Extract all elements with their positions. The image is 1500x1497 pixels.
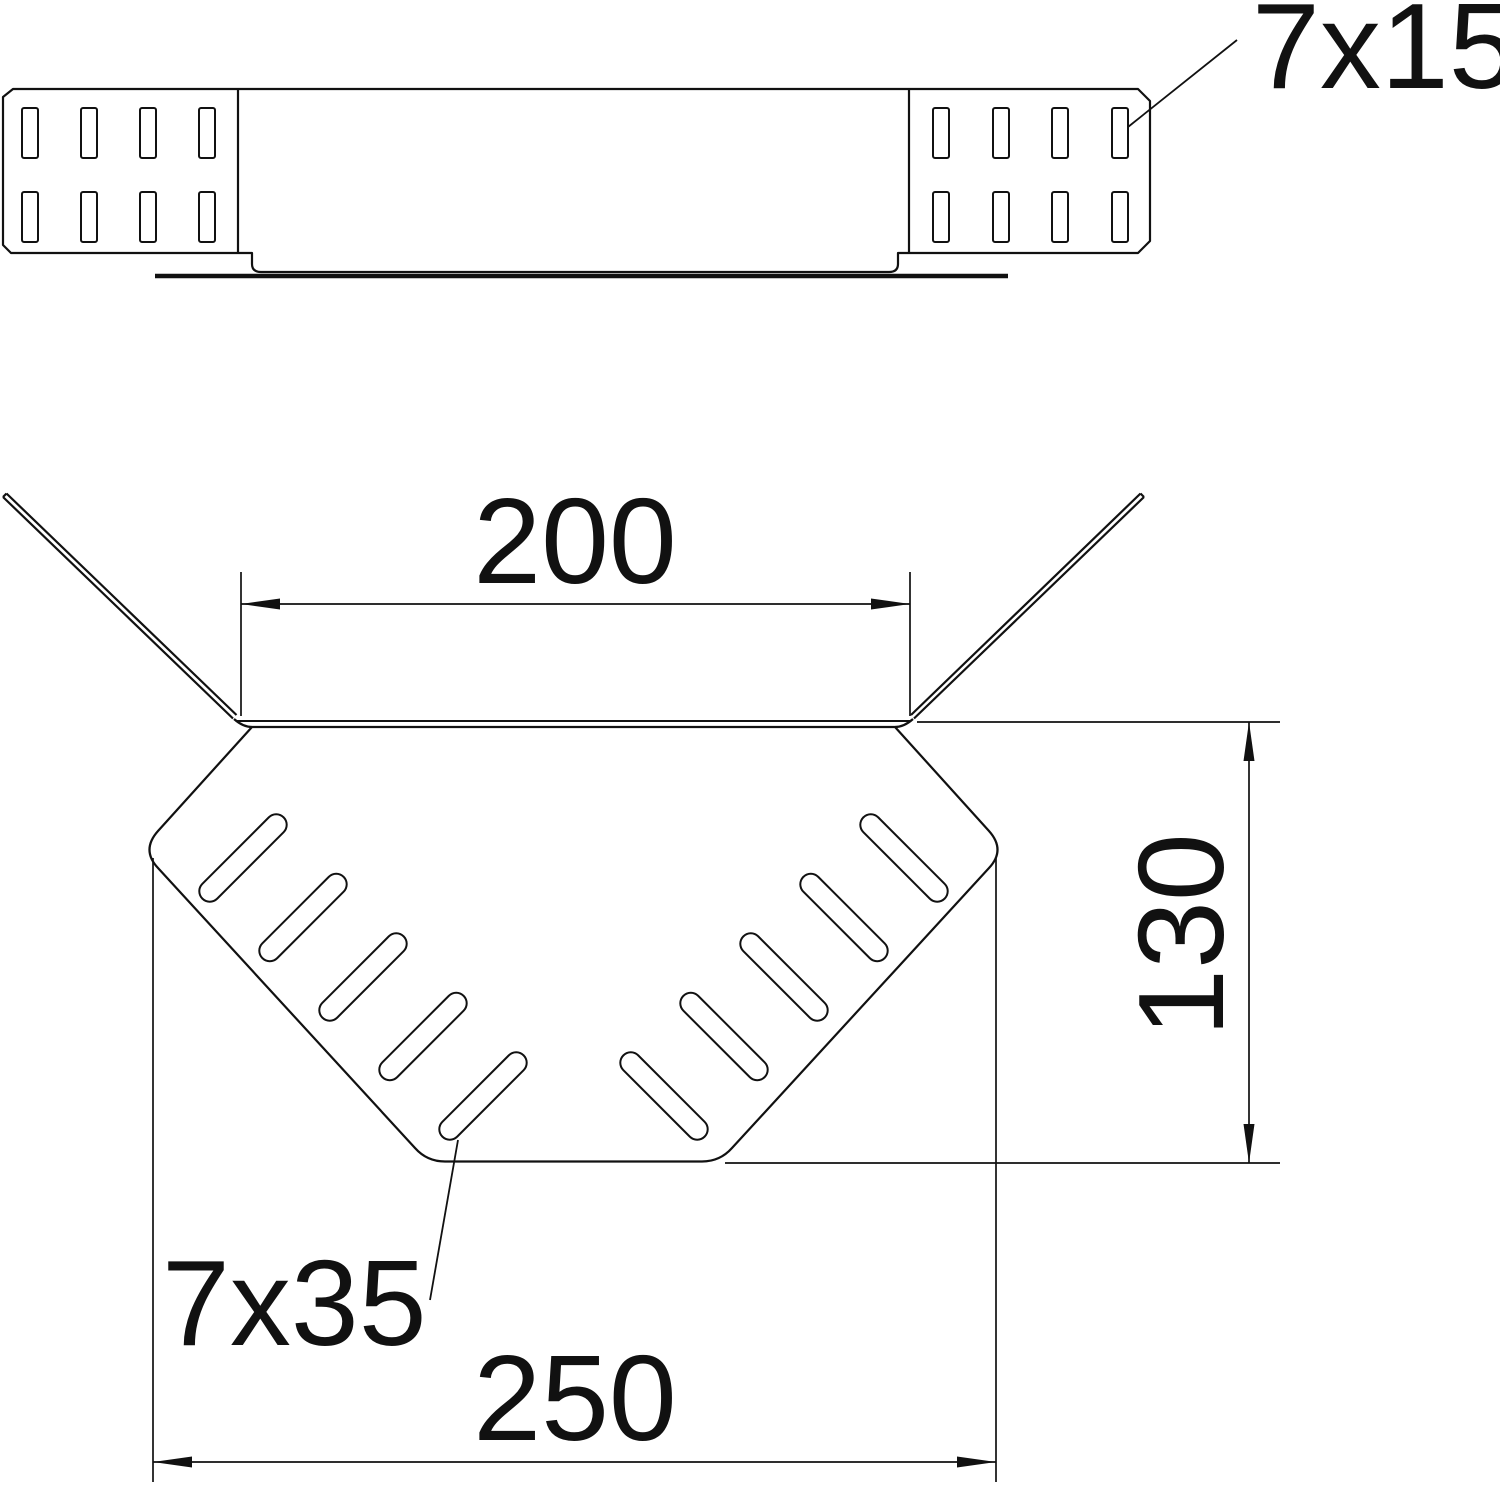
dimension-130: 130	[725, 722, 1280, 1163]
corner-slot	[691, 1003, 757, 1069]
connector-slot	[140, 108, 156, 158]
slot-size-label-7x35: 7x35	[162, 1235, 427, 1371]
right-wing-tip-cap	[1141, 494, 1145, 498]
connector-slot	[1112, 108, 1128, 158]
side-view-connector	[3, 89, 1150, 276]
label-7x35: 7x35	[162, 1140, 458, 1371]
arrowhead-right	[871, 599, 910, 610]
corner-slot	[450, 1063, 516, 1129]
corner-slot	[811, 884, 877, 950]
corner-slot	[210, 825, 276, 891]
arrowhead-down	[1244, 1124, 1255, 1163]
leader-line-7x15	[1128, 40, 1237, 127]
connector-slot	[81, 192, 97, 242]
corner-slot	[390, 1003, 456, 1069]
corner-slots-right	[631, 825, 937, 1129]
connector-slot	[933, 192, 949, 242]
dimension-value-200: 200	[473, 473, 677, 609]
connector-slot	[993, 192, 1009, 242]
corner-slot	[270, 884, 336, 950]
corner-slot	[330, 944, 396, 1010]
connector-slot	[81, 108, 97, 158]
corner-slot	[631, 1063, 697, 1129]
left-wing-inner	[7, 494, 237, 716]
connector-slot	[1112, 192, 1128, 242]
right-wing-outer	[914, 497, 1144, 719]
leader-line-7x35	[430, 1140, 458, 1300]
left-wing-tip-cap	[3, 494, 7, 498]
side-view-outline	[3, 89, 1150, 272]
corner-slot	[751, 944, 817, 1010]
left-plate-slots	[22, 108, 215, 242]
connector-slot	[199, 108, 215, 158]
right-wing	[911, 494, 1144, 719]
connector-slot	[140, 192, 156, 242]
connector-slot	[22, 108, 38, 158]
slot-size-label-7x15: 7x15	[1252, 0, 1500, 114]
left-wing	[3, 494, 237, 719]
connector-slot	[933, 108, 949, 158]
right-wing-inner	[911, 494, 1141, 716]
corner-slot	[871, 825, 937, 891]
drawing-page: 7x15	[0, 0, 1500, 1497]
corner-slots-left	[210, 825, 516, 1129]
label-7x15: 7x15	[1128, 0, 1500, 127]
connector-slot	[1052, 192, 1068, 242]
arrowhead-left	[153, 1457, 192, 1468]
arrowhead-right	[957, 1457, 996, 1468]
connector-slot	[22, 192, 38, 242]
connector-slot	[1052, 108, 1068, 158]
dimension-value-130: 130	[1113, 833, 1249, 1037]
connector-slot	[993, 108, 1009, 158]
arrowhead-left	[241, 599, 280, 610]
right-plate-slots	[933, 108, 1128, 242]
dimension-value-250: 250	[473, 1330, 677, 1466]
dimension-200: 200	[241, 473, 910, 716]
connector-slot	[199, 192, 215, 242]
arrowhead-up	[1244, 722, 1255, 761]
left-wing-outer	[3, 497, 233, 719]
technical-drawing: 7x15	[0, 0, 1500, 1497]
